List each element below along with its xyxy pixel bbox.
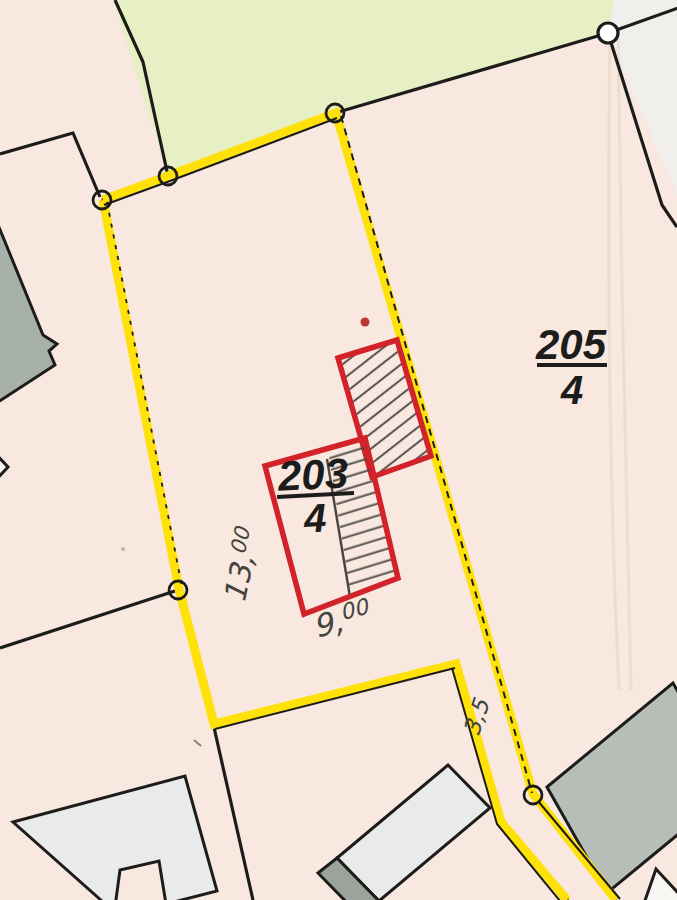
cadastral-map: 205 4 203 4 13,00 9,00 3,5	[0, 0, 677, 900]
parcel-205-denominator: 4	[560, 368, 583, 412]
red-dot-marker	[361, 318, 370, 327]
paper-speck	[121, 547, 125, 551]
parcel-205-number: 205	[535, 321, 607, 368]
parcel-203-denominator: 4	[302, 495, 328, 540]
survey-point-marker-white	[598, 23, 618, 43]
map-canvas: 205 4 203 4 13,00 9,00 3,5	[0, 0, 677, 900]
